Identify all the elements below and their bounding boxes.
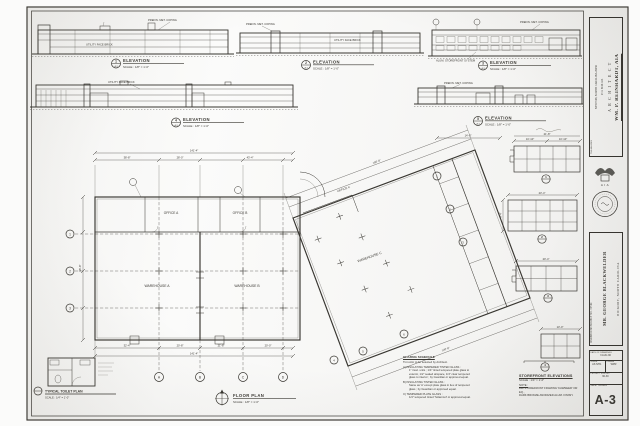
angled-column-crosses [309, 197, 421, 333]
room-warehouse-c: WAREHOUSE C [357, 251, 383, 264]
drawn-field: DRAWN WPR [606, 361, 622, 372]
grid4-dim-total: 13'-0" [557, 325, 564, 329]
project-block: WAREHOUSE PROJECT NO. 3 FOR: MR. GEORGE … [589, 232, 623, 346]
elevation-3-label: 3 A-3 ELEVATION SCALE : 1/8" = 1'-0" [479, 60, 552, 71]
storefront-grid-2: 23'-4" 9'-4" 2 [499, 191, 580, 243]
storefront-note-line: DARK BRONZE ANODIZED ALUM. FINISH. [519, 394, 581, 398]
glazing-item-b-line: glass ; by Guardian or approved equal. [409, 388, 479, 392]
grid1-dim-b: 10'-10" [559, 137, 567, 141]
elevation-5-mark: 5 [477, 117, 479, 121]
dim-diag-top: 180'-8" [372, 158, 381, 165]
grid4-no: 4 [544, 363, 546, 367]
elevation-5-title: ELEVATION [485, 115, 512, 120]
note-coping-2: PREFIN. MET. COPING [246, 22, 275, 26]
grid-col-b: B [199, 376, 202, 380]
storefront-elevations-block: STOREFRONT ELEVATIONS SCALE : 1/4" = 1'-… [519, 374, 581, 398]
grid-row-1: 1 [69, 232, 71, 236]
elevation-4-mark: 4 [175, 119, 177, 123]
architect-seal [590, 189, 620, 219]
grid-col-d: D [282, 376, 285, 380]
sheet-number-field: SHEET NUMBER A-3 [590, 385, 622, 416]
elevation-2-label: 2 A-3 ELEVATION SCALE : 1/8" = 1'-0" [302, 59, 375, 70]
scale-drawn-field: SCALE AS NTD. DRAWN WPR [590, 361, 622, 373]
grid1-no: 1 [545, 175, 547, 179]
note-brick-4: UTILITY FACE BRICK [108, 80, 135, 84]
architect-name: WM. P. REINHARDT, AIA [615, 20, 620, 154]
grid-row-2: 2 [69, 269, 71, 273]
architect-phone: 704-464-2061 [591, 20, 594, 154]
dim-top-c: 43'-4" [247, 156, 254, 160]
left-dims: 96'-8" [78, 195, 85, 342]
bay-5: 5 [362, 349, 364, 353]
elevation-2-scale: SCALE : 1/8" = 1'-0" [313, 66, 339, 70]
architect-block: WM. P. REINHARDT, AIA A R C H I T E C T … [589, 17, 623, 157]
note-coping-5: PREFIN. MET. COPING [444, 81, 473, 85]
elevation-3-mark: 3 [482, 62, 484, 66]
dim-bot-c: 21'-8" [218, 344, 225, 348]
floor-plan-label: FLOOR PLAN [233, 393, 264, 398]
dim-bot-a: 32'-4" [124, 344, 131, 348]
drawing-sheet-svg: PREFIN. MET. COPING UTILITY FACE BRICK 1… [0, 0, 640, 426]
room-warehouse-a: WAREHOUSE A [144, 284, 170, 288]
dim-bot-d: 20'-0" [265, 344, 272, 348]
file-value: 90-30 [590, 375, 622, 378]
storefront-grid-3: 20'-4" 3 [512, 257, 579, 302]
dim-sf-left: 14'-0" [465, 134, 472, 138]
elevation-1-drawing: PREFIN. MET. COPING UTILITY FACE BRICK [32, 18, 234, 57]
room-warehouse-b: WAREHOUSE B [234, 284, 260, 288]
room-office-c: OFFICE C [337, 185, 351, 193]
grid2-dim-side: 9'-4" [499, 212, 503, 217]
elevation-4-scale: SCALE : 1/8" = 1'-0" [183, 124, 209, 128]
note-coping: PREFIN. MET. COPING [148, 18, 177, 22]
bay-1: 1 [436, 174, 438, 178]
storefront-bay-dividers [440, 177, 499, 290]
note-coping-3: PREFIN. MET. COPING [520, 20, 549, 24]
glazing-item-a-line: glass to interior ; by Guardian or appro… [409, 376, 479, 380]
sheet-info-block: DATE OF DRAWINGS 3 AUG 90 SCALE AS NTD. … [589, 350, 623, 416]
elevation-3-drawing: PREFIN. MET. COPING ALUM. STOREFRONT SYS… [428, 19, 582, 63]
project-line1: WAREHOUSE PROJECT NO. 3 FOR: [591, 235, 594, 343]
aia-member-label: A I A [601, 183, 609, 187]
pencil-note [536, 129, 561, 132]
title-block-strip: WM. P. REINHARDT, AIA A R C H I T E C T … [587, 11, 625, 416]
dim-bot-total: 141'-4" [190, 352, 198, 356]
grid2-dim-total: 23'-4" [539, 191, 546, 195]
bay-bubbles: 1 2 3 4 5 6 [330, 172, 467, 364]
dim-diag-bot: 120'-8" [441, 346, 450, 353]
grid-row-3: 3 [69, 306, 71, 310]
elevation-3-scale: SCALE : 1/8" = 1'-0" [490, 67, 516, 71]
elevation-2-mark: 2 [305, 61, 307, 65]
elevation-3-title: ELEVATION [490, 60, 517, 65]
date-value: 3 AUG 90 [590, 354, 622, 357]
grid2-no: 2 [541, 235, 543, 239]
elevation-1-title: ELEVATION [123, 58, 150, 63]
dim-top-total: 141'-4" [190, 149, 198, 153]
bay-2: 2 [449, 207, 451, 211]
bottom-dims: 32'-4" 20'-8" 21'-8" 20'-0" 141'-4" [93, 340, 295, 360]
architect-address1: P. O. BOX 443 [602, 20, 605, 154]
grid-col-a: A [158, 376, 161, 380]
elevation-1-mark: 1 [115, 60, 117, 64]
project-location: HICKORY, NORTH CAROLINA [617, 235, 620, 343]
top-dims: 141'-4" 38'-8" 28'-0" 43'-4" [93, 149, 295, 197]
toilet-plan-pencil-notes [98, 363, 114, 375]
note-brick-2: UTILITY FACE BRICK [334, 38, 361, 42]
elevation-4-drawing: UTILITY FACE BRICK [30, 80, 298, 110]
grid3-dim-total: 20'-4" [543, 257, 550, 261]
elevation-2-title: ELEVATION [313, 59, 340, 64]
drawn-value: WPR [606, 363, 622, 366]
elevation-1-scale: SCALE : 1/8" = 1'-0" [123, 65, 149, 69]
dim-bot-b: 20'-8" [177, 344, 184, 348]
scale-value: AS NTD. [590, 363, 605, 366]
room-office-b: OFFICE B [233, 211, 248, 215]
glazing-schedule: GLAZING SCHEDULE Tint color to be select… [403, 356, 479, 400]
dim-top-a: 38'-8" [124, 156, 131, 160]
angled-wing: 180'-8" 120'-8" 1 2 3 4 5 6 OF [284, 125, 539, 390]
grid1-dim-total: 21'-8" [544, 132, 551, 136]
window-row-1 [436, 37, 543, 43]
storefront-grid-4: 13'-0" 4 [524, 325, 582, 371]
elevation-5-scale: SCALE : 1/8" = 1'-0" [485, 122, 511, 126]
dim-left-total: 96'-8" [78, 265, 82, 272]
scale-field: SCALE AS NTD. [590, 361, 606, 372]
room-office-a: OFFICE A [164, 211, 179, 215]
elevation-1-label: 1 A-3 ELEVATION SCALE : 1/8" = 1'-0" [112, 58, 185, 69]
bay-6: 6 [403, 332, 405, 336]
grid-bubbles: A B C D 1 2 3 [66, 230, 288, 382]
grid1-dim-a: 10'-10" [526, 137, 534, 141]
glazing-item-c-line: 1/4" tempered tinted 'Solarcool' or appr… [409, 396, 479, 400]
elevation-5-label: 5 A-3 ELEVATION SCALE : 1/8" = 1'-0" [474, 115, 547, 126]
grid-col-c: C [242, 376, 245, 380]
floor-plan-scale: SCALE : 1/8" = 1'-0" [233, 400, 259, 404]
architect-address2: NEWTON, NORTH CAROLINA 28658 [596, 20, 599, 154]
glazing-intro: Tint color to be selected by Architect. [403, 361, 479, 365]
architect-title: A R C H I T E C T [608, 20, 612, 154]
grid3-no: 3 [547, 294, 549, 298]
dim-top-b: 28'-0" [177, 156, 184, 160]
toilet-plan-title: TYPICAL TOILET PLAN [45, 390, 83, 394]
storefront-scale: SCALE : 1/4" = 1'-0" [519, 379, 581, 383]
note-brick: UTILITY FACE BRICK [86, 43, 113, 47]
sheet-number: A-3 [590, 387, 622, 407]
note-storefront-sys: ALUM. STOREFRONT SYSTEM [436, 59, 476, 63]
bay-4: 4 [333, 358, 335, 362]
blueprint-photo: PREFIN. MET. COPING UTILITY FACE BRICK 1… [0, 0, 640, 426]
bay-3: 3 [462, 240, 464, 244]
toilet-plan-scale: SCALE : 1/4" = 1'-0" [45, 395, 69, 399]
storefront-grid-1: 14'-0" 10'-10" 10'-10" 21'-8" 1 [435, 132, 582, 183]
window-row-2 [436, 46, 521, 51]
glazing-title: GLAZING SCHEDULE [403, 356, 479, 360]
project-file-field: PROJECT FILE NO. 90-30 [590, 373, 622, 385]
project-client: MR. GEORGE BLACKWELDER [603, 235, 608, 343]
elevation-4-label: 4 A-3 ELEVATION SCALE : 1/8" = 1'-0" [172, 117, 245, 128]
date-field: DATE OF DRAWINGS 3 AUG 90 [590, 351, 622, 361]
aia-member-emblem: A I A [592, 160, 618, 188]
elevation-2-drawing: PREFIN. MET. COPING UTILITY FACE BRICK [236, 22, 424, 56]
elevation-4-title: ELEVATION [183, 117, 210, 122]
toilet-plan-drawing: TYPICAL TOILET PLAN SCALE : 1/4" = 1'-0" [34, 358, 116, 399]
floor-plan-title: FLOOR PLAN SCALE : 1/8" = 1'-0" [215, 390, 296, 406]
